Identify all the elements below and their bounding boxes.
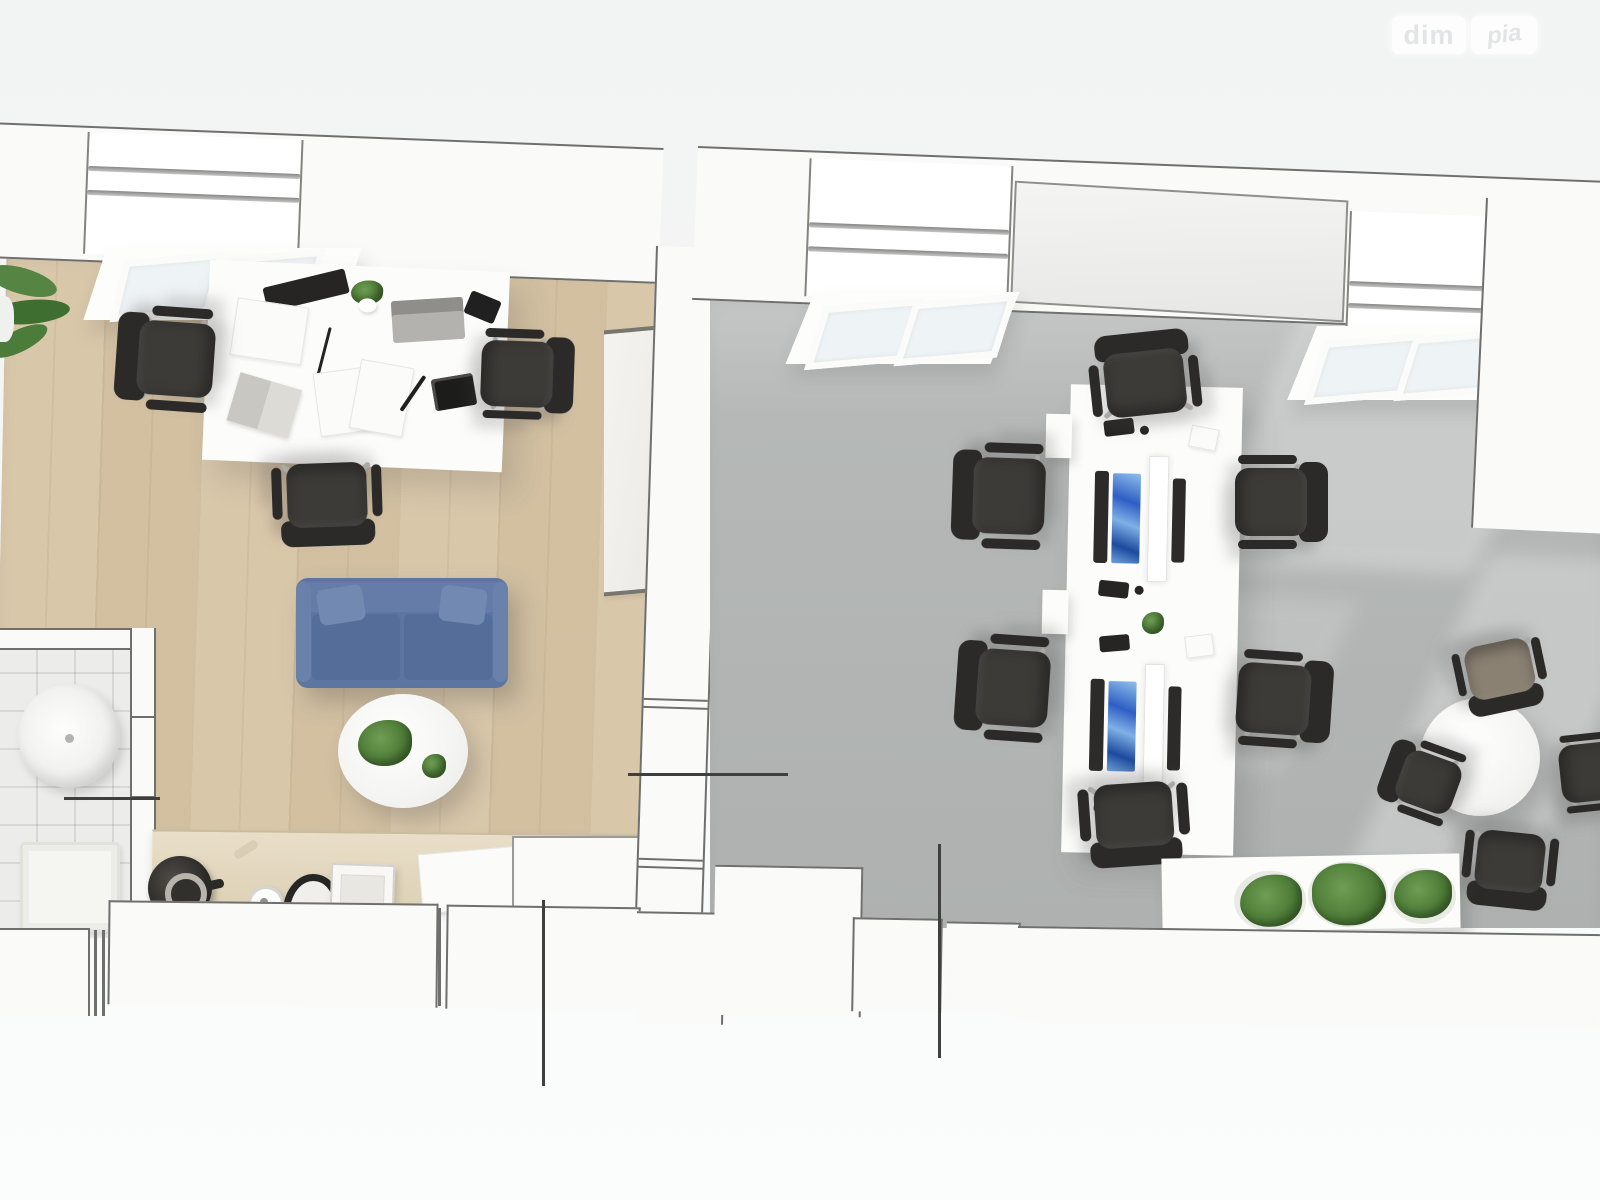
mouse (1135, 586, 1144, 595)
door-jamb-line (639, 858, 703, 862)
door-jamb-line (438, 908, 441, 1006)
meeting-chair (1540, 725, 1600, 819)
watermark-dim-logo: dim (1392, 16, 1466, 54)
door-jamb-line (94, 930, 97, 1016)
monitor-back (1089, 679, 1105, 771)
plant-pot (0, 296, 14, 342)
leader-line-vertical-right (938, 844, 941, 1058)
floorplan-render (0, 0, 1600, 1200)
open-laptop (391, 297, 465, 343)
chair-seat (136, 319, 217, 399)
pen (316, 327, 331, 376)
tablet (463, 290, 502, 324)
door-jamb-line (132, 716, 154, 718)
bath-mat (20, 842, 120, 932)
desk-plant (1142, 612, 1164, 634)
leader-line-horizontal-bathroom (64, 797, 160, 800)
window-rail (809, 222, 1009, 235)
desk-plant-pot (358, 298, 377, 313)
paper-sheet (349, 359, 415, 438)
watermark-dim-text: dim (1403, 20, 1454, 51)
monitor-back (1093, 471, 1109, 563)
bottom-wall-corner (635, 911, 725, 1025)
bottom-wall-segment (107, 900, 438, 1007)
desk-papers (1188, 425, 1220, 452)
watermark-ria-logo: ріа (1471, 16, 1537, 54)
right-room-window-well (785, 292, 1019, 364)
planter-box (1161, 853, 1460, 934)
corner-plant (0, 258, 76, 378)
bottom-wall-segment (1017, 926, 1600, 1030)
chair-seat (1092, 780, 1175, 849)
window-rail (87, 190, 299, 203)
bottom-wall-segment (945, 921, 1021, 1014)
chair-seat (975, 648, 1052, 729)
chair-seat (286, 462, 368, 529)
chair-seat (1102, 347, 1188, 419)
pillow (315, 584, 366, 627)
left-room-window-opening (83, 132, 304, 262)
window-rail (88, 166, 300, 179)
chair-seat (1558, 740, 1600, 803)
chair-seat (972, 457, 1046, 536)
chair-seat (1473, 828, 1547, 894)
chair-seat (1235, 468, 1307, 536)
meeting-chair (1455, 811, 1564, 913)
office-chair (1081, 326, 1209, 438)
monitor-screen (1111, 473, 1141, 564)
watermark: dim ріа (1392, 16, 1537, 54)
open-notebook (227, 372, 303, 438)
office-chair (266, 444, 387, 548)
right-room-right-wall (1471, 198, 1600, 534)
coffee-table (338, 694, 468, 808)
pillow (438, 584, 488, 625)
window-rail (808, 246, 1008, 259)
office-chair (1073, 762, 1196, 870)
door-jamb-line (638, 866, 702, 870)
office-chair (1216, 452, 1328, 552)
leader-line-vertical-left (542, 900, 545, 1086)
table-plant (358, 720, 412, 766)
bottom-wall-corner (713, 865, 864, 1018)
keyboard (1098, 580, 1130, 599)
right-room-window-opening (804, 158, 1013, 304)
wash-basin (18, 684, 120, 788)
wall-panel (1010, 181, 1348, 323)
monitor-screen (1107, 681, 1137, 772)
chair-seat (1235, 662, 1313, 736)
watermark-ria-text: ріа (1485, 19, 1523, 51)
door-jamb-line (644, 698, 708, 702)
office-chair (460, 324, 575, 424)
bottom-wall-segment (0, 928, 90, 1016)
sofa (296, 578, 508, 688)
bottom-wall-segment (851, 917, 943, 1013)
acoustic-divider (1147, 456, 1170, 582)
desk-papers (1184, 633, 1214, 658)
office-chair (1215, 644, 1336, 754)
leader-line-horizontal-partition (628, 773, 788, 776)
door-jamb-line (643, 706, 707, 710)
chair-seat (480, 340, 554, 408)
office-chair (112, 300, 237, 418)
office-chair (952, 628, 1072, 748)
table-plant (422, 754, 446, 778)
keyboard (1099, 634, 1130, 652)
monitor-back (1171, 478, 1186, 562)
side-return (1042, 590, 1069, 635)
office-chair (950, 438, 1066, 554)
paper-sheet (230, 297, 310, 365)
monitor-back (1167, 686, 1182, 770)
door-jamb-line (102, 930, 105, 1016)
plant-leaf (0, 259, 60, 304)
